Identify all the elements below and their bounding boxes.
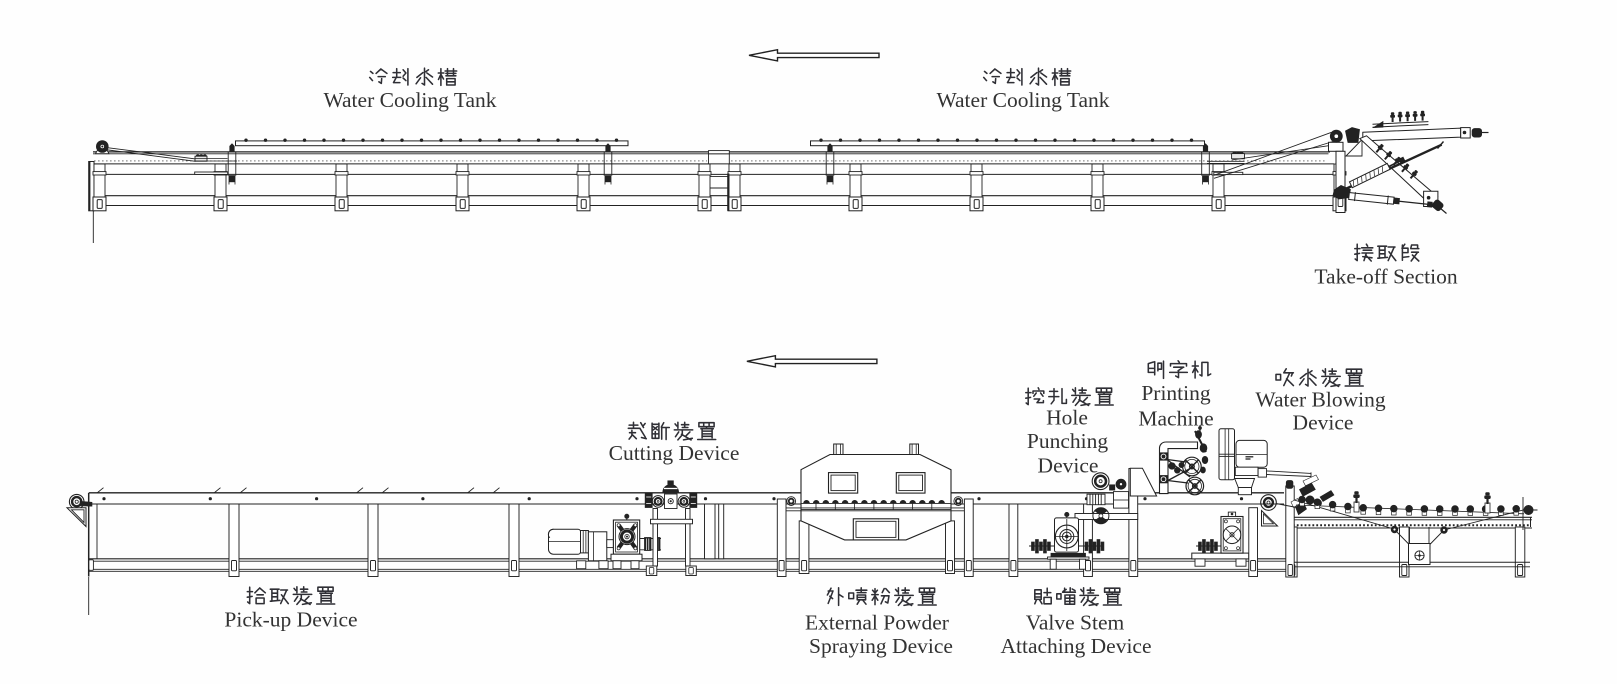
svg-text:External Powder: External Powder [805, 611, 949, 635]
svg-text:Pick-up Device: Pick-up Device [224, 608, 357, 632]
svg-text:Valve Stem: Valve Stem [1026, 611, 1125, 635]
svg-text:Cutting Device: Cutting Device [609, 441, 740, 465]
svg-text:Take-off Section: Take-off Section [1314, 265, 1457, 289]
svg-text:Punching: Punching [1027, 429, 1108, 453]
svg-text:Attaching Device: Attaching Device [1000, 634, 1151, 658]
svg-text:Device: Device [1038, 454, 1099, 478]
svg-text:Device: Device [1293, 411, 1354, 435]
svg-text:Printing: Printing [1141, 381, 1211, 405]
svg-text:Machine: Machine [1138, 407, 1213, 431]
svg-text:Water Cooling Tank: Water Cooling Tank [323, 88, 496, 112]
svg-text:Hole: Hole [1046, 406, 1088, 430]
svg-text:Spraying Device: Spraying Device [809, 634, 953, 658]
svg-text:Water Blowing: Water Blowing [1255, 388, 1385, 412]
svg-text:Water Cooling Tank: Water Cooling Tank [936, 88, 1109, 112]
